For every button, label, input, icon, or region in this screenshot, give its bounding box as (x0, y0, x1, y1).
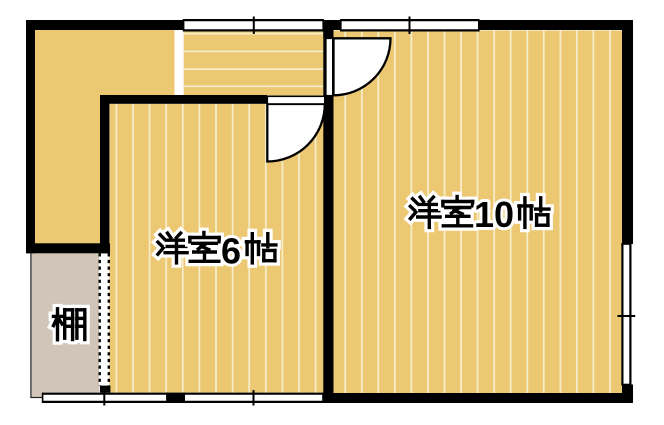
svg-text:6: 6 (221, 231, 241, 272)
svg-text:10: 10 (474, 194, 514, 235)
